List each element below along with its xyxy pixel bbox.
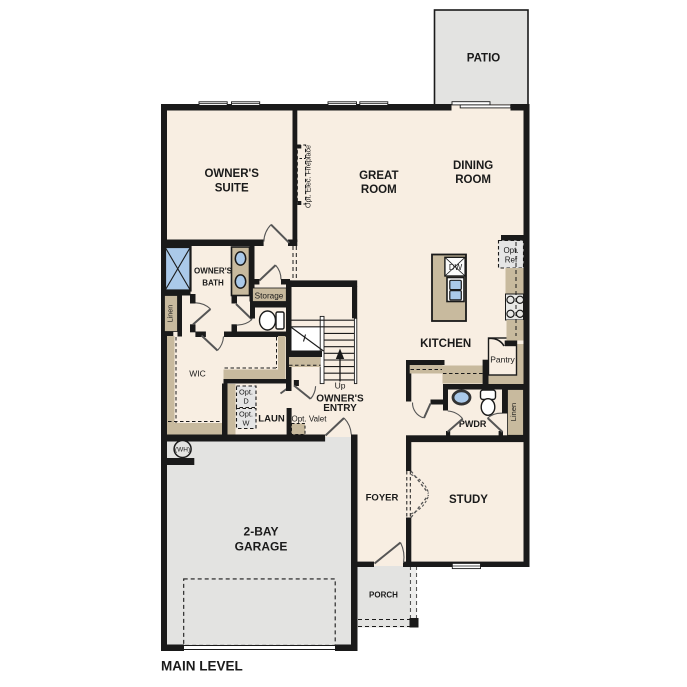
- svg-text:DINING: DINING: [453, 160, 493, 172]
- svg-text:W: W: [243, 419, 250, 428]
- svg-text:Linen: Linen: [166, 305, 175, 323]
- svg-text:Storage: Storage: [255, 292, 284, 301]
- svg-text:GARAGE: GARAGE: [235, 540, 288, 554]
- svg-text:Opt. Valet: Opt. Valet: [292, 415, 328, 424]
- svg-text:BATH: BATH: [202, 279, 224, 288]
- svg-text:ROOM: ROOM: [361, 184, 397, 196]
- svg-text:WIC: WIC: [189, 369, 206, 379]
- svg-text:Opt. Elec. Fireplace: Opt. Elec. Fireplace: [304, 145, 313, 208]
- svg-text:PORCH: PORCH: [369, 591, 398, 600]
- svg-text:STUDY: STUDY: [449, 494, 488, 506]
- svg-text:Up: Up: [335, 381, 346, 391]
- svg-text:ENTRY: ENTRY: [323, 403, 357, 414]
- svg-text:Linen: Linen: [509, 403, 518, 421]
- svg-text:FOYER: FOYER: [366, 493, 399, 504]
- svg-text:2-BAY: 2-BAY: [244, 525, 279, 539]
- svg-text:DW: DW: [449, 263, 463, 272]
- svg-text:GREAT: GREAT: [359, 170, 398, 182]
- svg-text:MAIN LEVEL: MAIN LEVEL: [161, 659, 243, 674]
- svg-text:OWNER'S: OWNER'S: [194, 267, 233, 276]
- svg-text:D: D: [243, 397, 248, 406]
- svg-text:(WH): (WH): [175, 447, 190, 454]
- svg-text:ROOM: ROOM: [455, 174, 491, 186]
- svg-text:SUITE: SUITE: [215, 182, 249, 194]
- svg-text:PATIO: PATIO: [467, 53, 500, 65]
- svg-text:OWNER'S: OWNER'S: [204, 168, 259, 180]
- svg-text:PWDR: PWDR: [459, 419, 487, 429]
- svg-text:Opt.: Opt.: [239, 410, 253, 419]
- svg-text:LAUN: LAUN: [258, 414, 285, 425]
- svg-text:Pantry: Pantry: [490, 355, 515, 365]
- svg-text:Opt.: Opt.: [239, 388, 253, 397]
- svg-text:KITCHEN: KITCHEN: [420, 338, 471, 350]
